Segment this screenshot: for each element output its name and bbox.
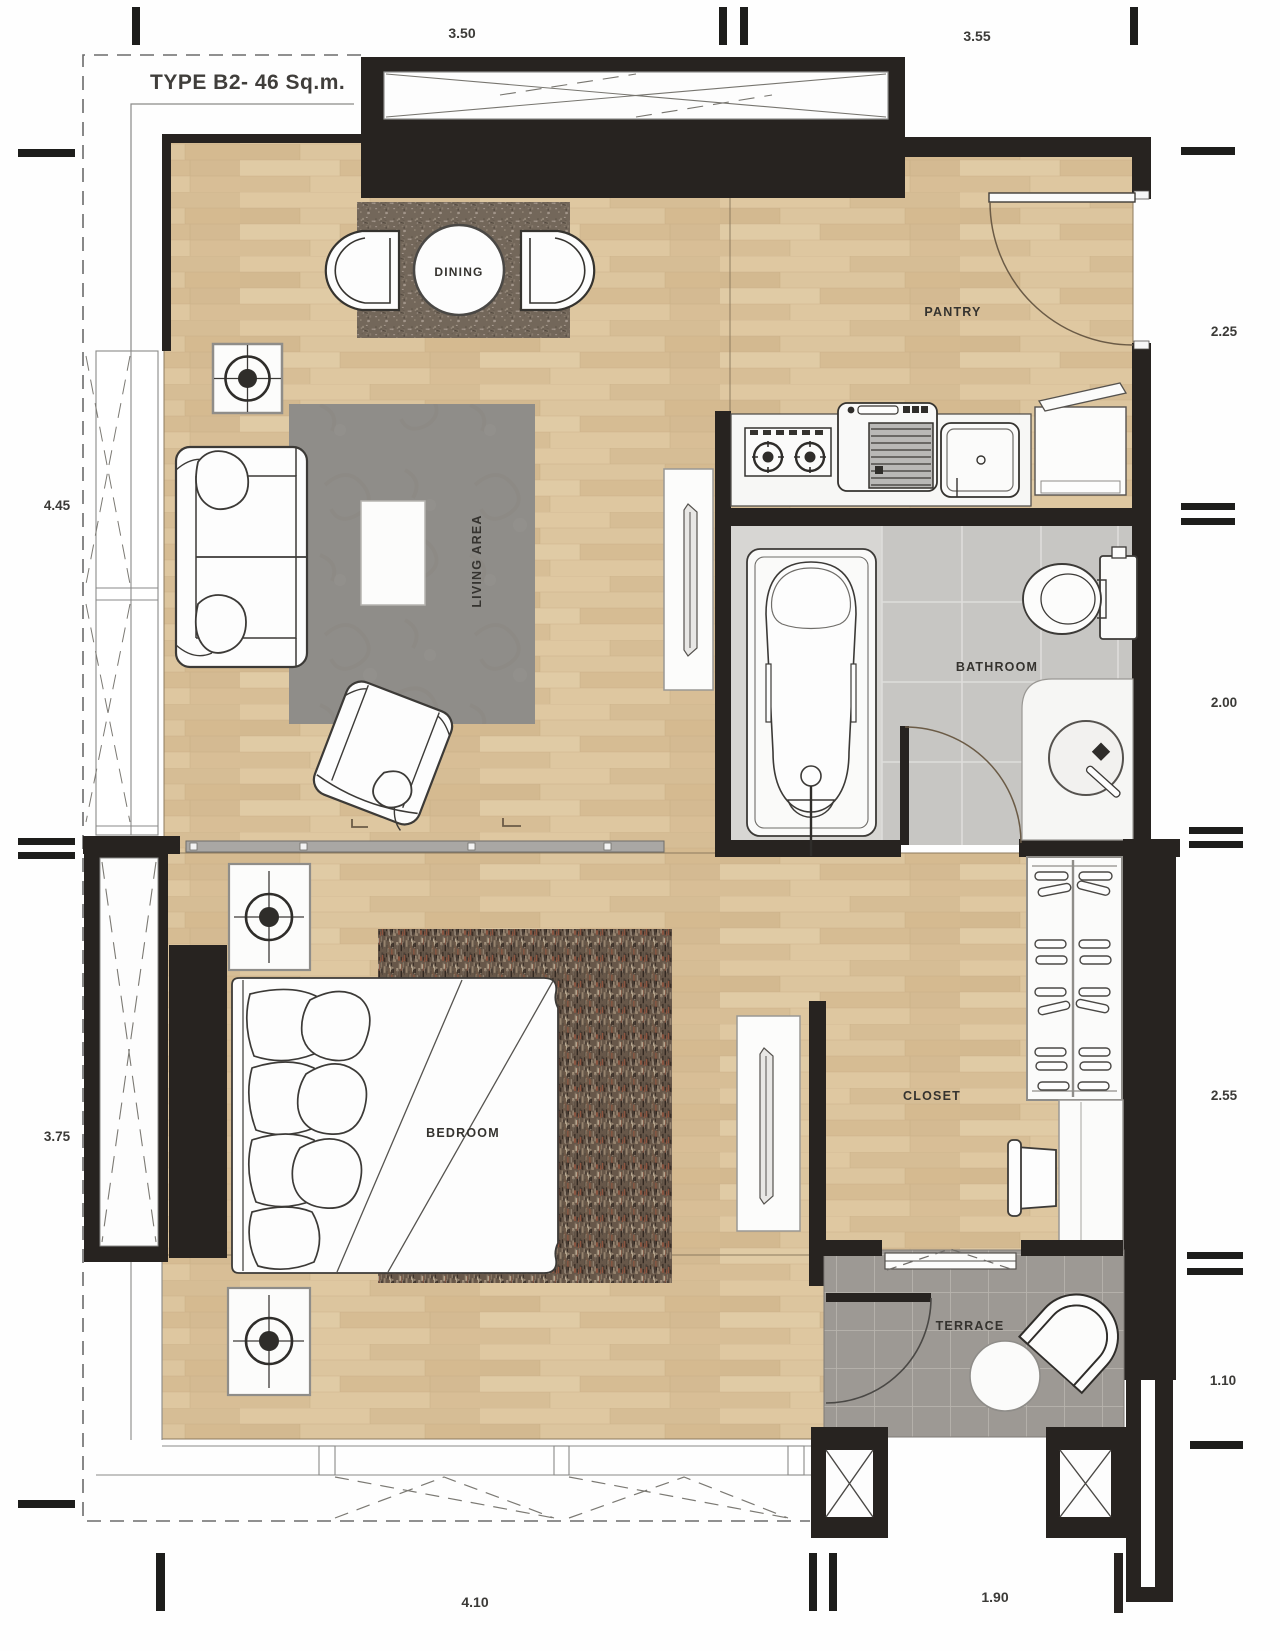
svg-text:PANTRY: PANTRY bbox=[924, 305, 981, 319]
svg-text:2.25: 2.25 bbox=[1211, 324, 1238, 339]
svg-text:3.55: 3.55 bbox=[963, 28, 990, 44]
svg-text:4.45: 4.45 bbox=[44, 498, 71, 513]
svg-text:3.75: 3.75 bbox=[44, 1129, 71, 1144]
svg-text:1.90: 1.90 bbox=[981, 1589, 1008, 1605]
svg-text:2.00: 2.00 bbox=[1211, 695, 1237, 710]
svg-text:1.10: 1.10 bbox=[1210, 1373, 1236, 1388]
svg-text:TYPE B2- 46 Sq.m.: TYPE B2- 46 Sq.m. bbox=[150, 71, 345, 94]
svg-text:3.50: 3.50 bbox=[448, 25, 475, 41]
svg-text:BATHROOM: BATHROOM bbox=[956, 660, 1038, 674]
svg-text:CLOSET: CLOSET bbox=[903, 1089, 961, 1103]
svg-text:4.10: 4.10 bbox=[461, 1594, 488, 1610]
svg-text:BEDROOM: BEDROOM bbox=[426, 1126, 500, 1140]
svg-text:2.55: 2.55 bbox=[1211, 1088, 1238, 1103]
svg-text:TERRACE: TERRACE bbox=[936, 1319, 1005, 1333]
svg-text:LIVING AREA: LIVING AREA bbox=[470, 514, 484, 607]
svg-text:DINING: DINING bbox=[434, 265, 483, 279]
